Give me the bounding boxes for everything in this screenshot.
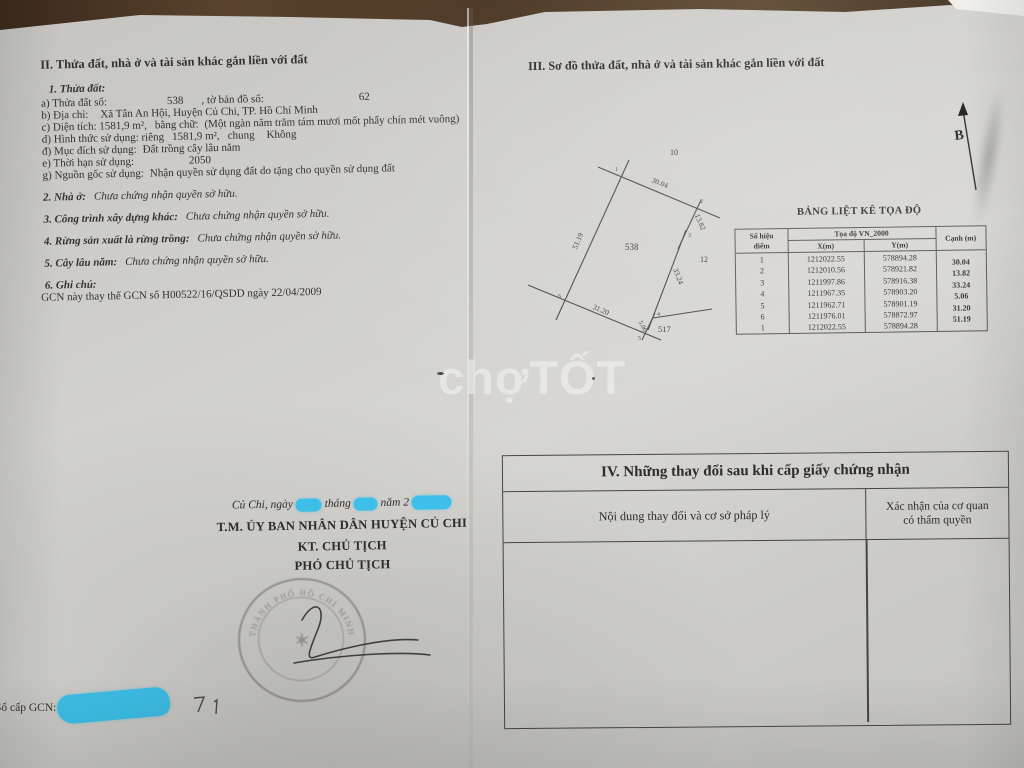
field-value: Không bbox=[266, 128, 296, 141]
section-iv-title: IV. Những thay đổi sau khi cấp giấy chứn… bbox=[503, 452, 1008, 492]
statement-value: Chưa chứng nhận quyền sở hữu. bbox=[94, 188, 238, 203]
statement-construction: 3. Công trình xây dựng khác:Chưa chứng n… bbox=[43, 208, 329, 226]
vertex-label: 3 bbox=[688, 233, 691, 239]
kt-chu-tich-line: KT. CHỦ TỊCH bbox=[198, 536, 486, 556]
field-label: bằng chữ: bbox=[155, 118, 199, 131]
coordinate-table-title: BẢNG LIỆT KÊ TỌA ĐỘ bbox=[734, 204, 984, 218]
paper-speck bbox=[592, 377, 595, 380]
adjacent-parcel-north: 10 bbox=[670, 148, 678, 157]
statement-forest: 4. Rừng sản xuất là rừng trồng:Chưa chứn… bbox=[44, 229, 341, 247]
statement-value: Chưa chứng nhận quyền sở hữu. bbox=[125, 253, 269, 268]
statement-house: 2. Nhà ở:Chưa chứng nhận quyền sở hữu. bbox=[43, 188, 238, 204]
col-header-point2: điểm bbox=[736, 241, 788, 251]
statement-value: Chưa chứng nhận quyền sở hữu. bbox=[186, 208, 330, 223]
redaction-mark bbox=[411, 495, 451, 510]
vertex-label: 2 bbox=[700, 199, 703, 205]
statement-label: 3. Công trình xây dựng khác: bbox=[43, 211, 178, 226]
signature-block: Củ Chi, ngày tháng năm 2 T.M. ỦY BAN NHÂ… bbox=[197, 494, 486, 575]
parcel-labels: 538 10 12 517 bbox=[625, 148, 708, 334]
point-cell: 4 bbox=[736, 288, 788, 300]
col-header-edge: Cạnh (m) bbox=[936, 233, 986, 243]
x-cell: 1211997.86 bbox=[788, 276, 864, 288]
x-cell: 1212022.55 bbox=[788, 253, 864, 265]
statement-perennial: 5. Cây lâu năm:Chưa chứng nhận quyền sở … bbox=[44, 253, 269, 270]
section-iv-changes-table: IV. Những thay đổi sau khi cấp giấy chứn… bbox=[502, 451, 1011, 729]
authority-line1: Xác nhận của cơ quan bbox=[886, 498, 989, 513]
edge-cell: 51.19 bbox=[937, 313, 987, 325]
point-cell: 2 bbox=[736, 265, 788, 277]
issuing-authority-line: T.M. ỦY BAN NHÂN DÂN HUYỆN CỦ CHI bbox=[198, 515, 486, 535]
pen-marks bbox=[188, 692, 228, 718]
point-cell: 1 bbox=[737, 322, 789, 334]
photo-of-land-certificate: { "watermark": { "part1": "chợ", "part2"… bbox=[0, 0, 1024, 768]
statement-label: 5. Cây lâu năm: bbox=[44, 256, 117, 270]
redaction-mark bbox=[296, 498, 322, 511]
y-cell: 578901.19 bbox=[864, 298, 936, 310]
vertex-label: 5 bbox=[638, 336, 641, 342]
edge-cell: 13.82 bbox=[936, 268, 986, 280]
field-value: 2050 bbox=[189, 154, 211, 166]
edge-length-label: 33.24 bbox=[671, 267, 686, 286]
col-header-y: Y(m) bbox=[864, 239, 936, 249]
field-label: g) Nguồn gốc sử dụng: bbox=[42, 168, 144, 182]
y-cell: 578894.28 bbox=[865, 320, 937, 332]
paper-speck bbox=[437, 372, 444, 375]
vertex-label: 1 bbox=[615, 167, 618, 173]
changes-table-empty-body bbox=[504, 539, 1011, 725]
x-cell: 1212022.55 bbox=[789, 321, 865, 333]
redaction-mark bbox=[354, 497, 378, 510]
date-text: năm 2 bbox=[380, 496, 409, 508]
x-cell: 1211976.01 bbox=[789, 310, 865, 322]
coordinate-table-block: BẢNG LIỆT KÊ TỌA ĐỘ Số hiệu điểm Tọa độ … bbox=[734, 204, 986, 335]
adjacent-parcel-east: 12 bbox=[700, 255, 708, 264]
watermark-part1: chợ bbox=[438, 351, 529, 404]
x-cell: 1212010.56 bbox=[788, 264, 864, 276]
y-cell: 578894.28 bbox=[864, 252, 936, 264]
signature-stroke bbox=[282, 595, 452, 675]
watermark-part2: TỐT bbox=[529, 351, 626, 404]
edge-length-label: 13.82 bbox=[693, 212, 708, 231]
field-value: Đất trồng cây lâu năm bbox=[143, 142, 241, 156]
field-value: 1581,9 m², bbox=[172, 130, 220, 143]
field-value: 538 bbox=[167, 95, 184, 107]
statement-value: Chưa chứng nhận quyền sở hữu. bbox=[197, 229, 341, 244]
parcel-heading: 1. Thửa đất: bbox=[49, 82, 106, 95]
statement-label: 2. Nhà ở: bbox=[43, 191, 86, 204]
coordinate-table: Số hiệu điểm Tọa độ VN_2000 X(m) Y(m) Cạ… bbox=[734, 225, 987, 335]
vertex-label: 4 bbox=[657, 312, 660, 318]
point-cell: 5 bbox=[736, 300, 788, 312]
note-heading: 6. Ghi chú: bbox=[45, 279, 97, 292]
gcn-number-label: Số cấp GCN: bbox=[0, 702, 56, 714]
edge-cell: 33.24 bbox=[936, 279, 986, 291]
edge-length-label: 51.19 bbox=[570, 231, 585, 250]
col-header-x: X(m) bbox=[788, 240, 864, 250]
date-text: Củ Chi, ngày bbox=[232, 498, 293, 511]
edge-cell: 31.20 bbox=[936, 302, 986, 314]
parcel-boundary-lines bbox=[528, 160, 720, 340]
parcel-number-label: 538 bbox=[625, 242, 639, 252]
point-cell: 6 bbox=[737, 311, 789, 323]
north-label: B bbox=[954, 128, 965, 144]
table-gridline bbox=[866, 540, 869, 722]
col-header-change-content: Nội dung thay đổi và cơ sở pháp lý bbox=[503, 489, 866, 542]
north-arrow-icon: B bbox=[954, 102, 976, 190]
adjacent-parcel-south: 517 bbox=[658, 324, 671, 334]
date-text: tháng bbox=[325, 497, 351, 509]
edge-cell: 30.04 bbox=[936, 256, 986, 268]
statement-label: 4. Rừng sản xuất là rừng trồng: bbox=[44, 233, 190, 248]
point-cell: 1 bbox=[736, 254, 788, 266]
y-cell: 578872.97 bbox=[865, 309, 937, 321]
col-header-authority: Xác nhận của cơ quan có thẩm quyền bbox=[866, 488, 1008, 539]
chotot-watermark: chợTỐT bbox=[438, 350, 626, 405]
left-page-section-ii: II. Thửa đất, nhà ở và tài sản khác gắn … bbox=[28, 42, 515, 314]
section-ii-title: II. Thửa đất, nhà ở và tài sản khác gắn … bbox=[40, 52, 308, 73]
vertex-number-labels: 1 2 3 4 5 6 bbox=[558, 167, 703, 342]
x-cell: 1211967.35 bbox=[788, 287, 864, 299]
x-cell: 1211962.71 bbox=[788, 299, 864, 311]
point-cell: 3 bbox=[736, 277, 788, 289]
y-cell: 578921.82 bbox=[864, 263, 936, 275]
col-header-point: Số hiệu bbox=[735, 231, 787, 241]
authority-line2: có thẩm quyền bbox=[903, 513, 971, 528]
y-cell: 578916.38 bbox=[864, 275, 936, 287]
field-label: chung bbox=[228, 129, 255, 142]
field-label: b) Địa chỉ: bbox=[41, 109, 88, 122]
edge-cell: 5.06 bbox=[936, 290, 986, 302]
changes-table-header: Nội dung thay đổi và cơ sở pháp lý Xác n… bbox=[503, 488, 1008, 543]
y-cell: 578903.20 bbox=[864, 286, 936, 298]
edge-length-labels: 30.04 13.82 33.24 5.06 31.20 51.19 bbox=[570, 175, 708, 333]
field-value: 62 bbox=[359, 91, 370, 103]
edge-length-label: 30.04 bbox=[650, 175, 669, 190]
vertex-label: 6 bbox=[558, 294, 561, 300]
